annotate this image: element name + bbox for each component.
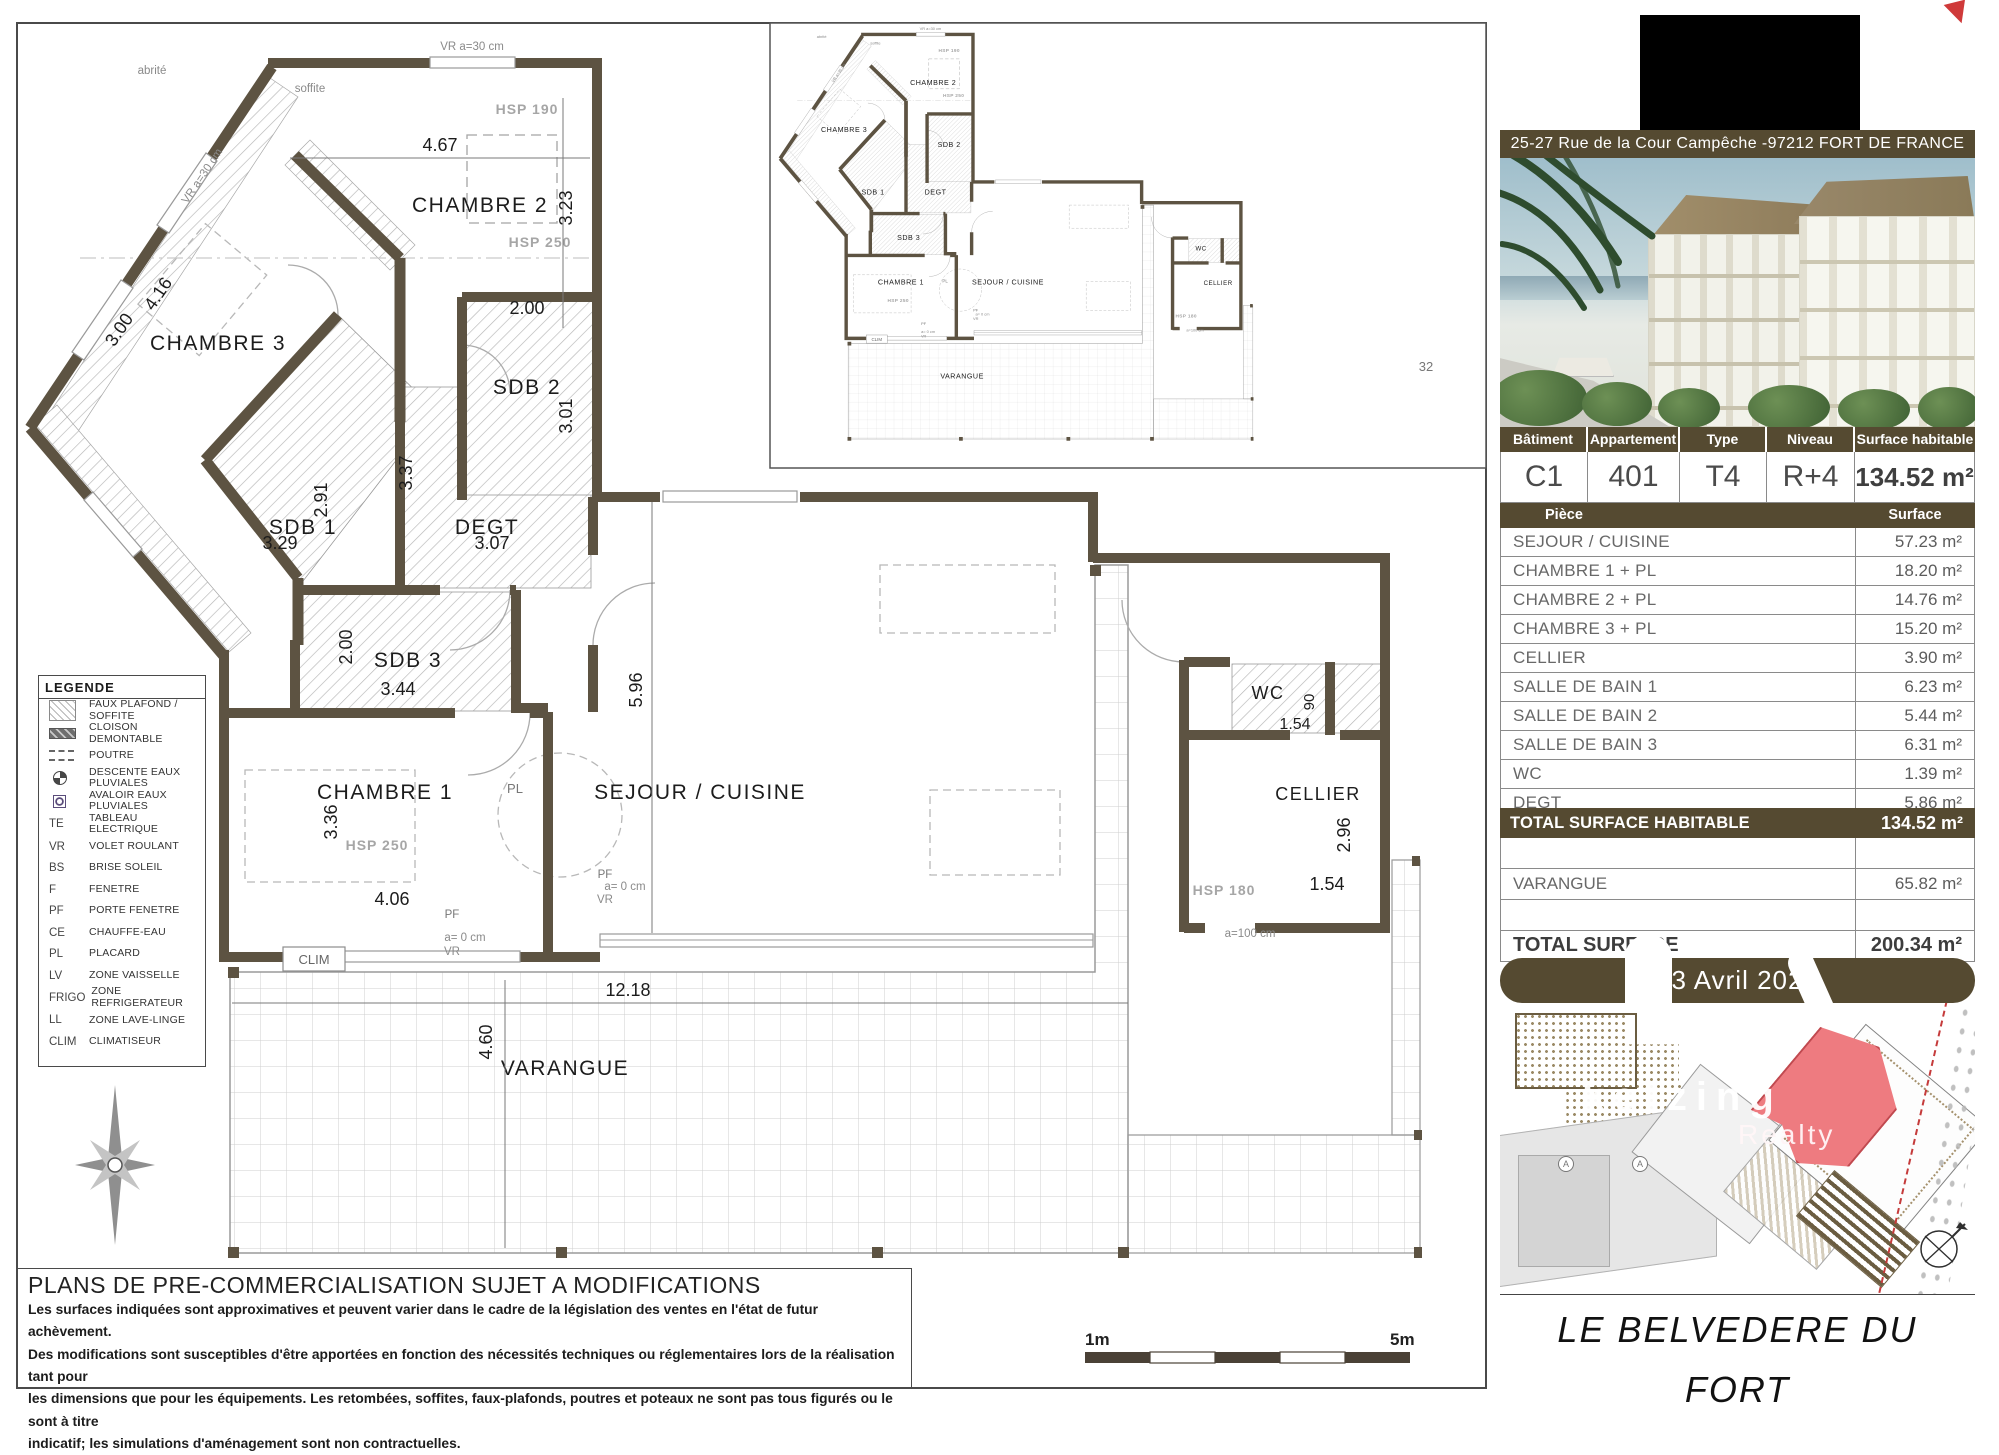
disclaimer-line: indicatif; les simulations d'aménagement… [28, 1433, 901, 1455]
legend-symbol-icon: F [43, 884, 83, 896]
disclaimer-line: les dimensions que pour les équipements.… [28, 1388, 901, 1433]
dim-3-01: 3.01 [556, 398, 576, 433]
legend-item-label: FENETRE [89, 884, 139, 896]
photo-bush [1582, 382, 1652, 426]
total-habitable-label: TOTAL SURFACE HABITABLE [1500, 808, 1855, 838]
legend-symbol-icon: FRIGO [43, 992, 85, 1004]
col-type: Type [1680, 427, 1767, 452]
legend-item: POUTRE [39, 745, 205, 767]
varangue-value: 65.82 m² [1855, 869, 1974, 899]
plan-sheet-page: CHAMBRE 2 CHAMBRE 3 SDB 2 SDB 1 DEGT SDB… [0, 0, 1999, 1413]
legend-symbol-icon [43, 728, 83, 739]
col-surface-habitable: Surface habitable [1855, 427, 1975, 452]
room-surface: 14.76 m² [1855, 586, 1974, 614]
room-row: WC 1.39 m² [1501, 760, 1974, 789]
annot-vr1: VR [597, 894, 613, 906]
room-row: SALLE DE BAIN 1 6.23 m² [1501, 673, 1974, 702]
dim-1-54b: 1.54 [1309, 874, 1344, 894]
annot-pf1: PF [598, 869, 613, 881]
project-title: LE BELVEDERE DU FORT [1500, 1300, 1975, 1360]
palm-tree-icon [1500, 158, 1720, 368]
spacer-row [1501, 838, 1974, 869]
hatch-wc2 [1332, 664, 1383, 733]
room-surface: 18.20 m² [1855, 557, 1974, 585]
col-appartement: Appartement [1588, 427, 1680, 452]
info-table-header: Bâtiment Appartement Type Niveau Surface… [1500, 427, 1975, 452]
marker-a-icon: A [1632, 1156, 1648, 1172]
building-photo [1500, 158, 1975, 427]
legend-item: AVALOIR EAUX PLUVIALES [39, 790, 205, 813]
dim-2-00b: 2.00 [336, 629, 356, 664]
value-batiment: C1 [1500, 452, 1588, 503]
legend-item: BS BRISE SOLEIL [39, 857, 205, 879]
site-plan: A A ketzing Realty [1500, 1003, 1975, 1295]
room-name: SALLE DE BAIN 3 [1501, 731, 1855, 759]
room-surface: 1.39 m² [1855, 760, 1974, 788]
room-row: CELLIER 3.90 m² [1501, 644, 1974, 673]
photo-bush [1658, 388, 1720, 427]
scale-5m-label: 5m [1390, 1330, 1415, 1349]
legend-symbol-icon [43, 750, 83, 761]
annot-pf2: PF [445, 909, 460, 921]
dim-3-36: 3.36 [321, 804, 341, 839]
dim-3-23: 3.23 [556, 190, 576, 225]
legend-item-label: POUTRE [89, 750, 134, 762]
disclaimer-box: PLANS DE PRE-COMMERCIALISATION SUJET A M… [17, 1268, 912, 1388]
terrace-extension [1128, 1135, 1420, 1253]
dim-12-18: 12.18 [605, 980, 650, 1000]
legend-symbol-icon [43, 700, 83, 721]
scale-bar: 1m 5m [1085, 1330, 1415, 1363]
photo-bush [1838, 389, 1910, 427]
watermark-realty: Realty [1738, 1119, 1835, 1151]
room-sdb2: SDB 2 [493, 376, 561, 399]
annot-a01: a= 0 cm [604, 881, 645, 893]
room-surface: 57.23 m² [1855, 528, 1974, 556]
legend-item: LV ZONE VAISSELLE [39, 965, 205, 987]
legend-symbol-icon: CE [43, 927, 83, 939]
room-name: CELLIER [1501, 644, 1855, 672]
legend-symbol-icon: PF [43, 905, 83, 917]
legend-item: DESCENTE EAUX PLUVIALES [39, 767, 205, 790]
sidebar: 25-27 Rue de la Cour Campêche -97212 FOR… [1500, 0, 1975, 1413]
value-niveau: R+4 [1767, 452, 1855, 503]
room-row: CHAMBRE 2 + PL 14.76 m² [1501, 586, 1974, 615]
room-wc: WC [1252, 683, 1285, 703]
rooms-table-header: Pièce Surface [1500, 503, 1975, 528]
annot-clim: CLIM [298, 952, 329, 967]
col-niveau: Niveau [1767, 427, 1855, 452]
legend-item-label: VOLET ROULANT [89, 841, 179, 853]
annot-hsp250b: HSP 250 [346, 837, 409, 853]
dim-5-96: 5.96 [626, 672, 646, 707]
annot-vr30a: VR a=30 cm [440, 41, 504, 53]
value-appartement: 401 [1588, 452, 1680, 503]
room-surface: 15.20 m² [1855, 615, 1974, 643]
room-chambre1: CHAMBRE 1 [317, 781, 453, 804]
legend-item-label: CHAUFFE-EAU [89, 927, 166, 939]
address-bar: 25-27 Rue de la Cour Campêche -97212 FOR… [1500, 130, 1975, 158]
room-chambre3: CHAMBRE 3 [150, 332, 286, 355]
room-surface: 6.31 m² [1855, 731, 1974, 759]
annot-soffite: soffite [295, 83, 325, 95]
room-name: SALLE DE BAIN 2 [1501, 702, 1855, 730]
totals-table: VARANGUE 65.82 m² TOTAL SURFACE 200.34 m… [1500, 838, 1975, 962]
room-surface: 5.44 m² [1855, 702, 1974, 730]
photo-bush [1918, 387, 1975, 427]
disclaimer-title: PLANS DE PRE-COMMERCIALISATION SUJET A M… [28, 1272, 901, 1299]
legend-item: F FENETRE [39, 879, 205, 901]
legend-item-label: ZONE REFRIGERATEUR [91, 986, 201, 1009]
spacer-row [1501, 900, 1974, 931]
annot-a02: a= 0 cm [444, 932, 485, 944]
dim-3-37: 3.37 [396, 455, 416, 490]
rooms-table: SEJOUR / CUISINE 57.23 m² CHAMBRE 1 + PL… [1500, 528, 1975, 818]
dim-3-44: 3.44 [380, 679, 415, 699]
room-varangue: VARANGUE [501, 1057, 629, 1080]
legend-item-label: DESCENTE EAUX PLUVIALES [89, 767, 201, 790]
legend-item-label: PLACARD [89, 948, 140, 960]
room-row: SALLE DE BAIN 3 6.31 m² [1501, 731, 1974, 760]
watermark-brand: ketzing [1582, 1075, 1783, 1120]
annot-abrite: abrité [138, 65, 167, 77]
annot-pl: PL [507, 781, 523, 796]
value-surface-habitable: 134.52 m² [1855, 452, 1975, 503]
varangue-row: VARANGUE 65.82 m² [1501, 869, 1974, 900]
legend-item-label: PORTE FENETRE [89, 905, 180, 917]
dim-2-96: 2.96 [1334, 817, 1354, 852]
legend-title: LEGENDE [39, 678, 205, 699]
siteplan-compass-icon [1915, 1221, 1969, 1275]
marker-a-icon: A [1558, 1156, 1574, 1172]
redacted-logo [1640, 15, 1860, 130]
col-surface: Surface [1855, 503, 1975, 528]
room-row: CHAMBRE 3 + PL 15.20 m² [1501, 615, 1974, 644]
legend-symbol-icon [43, 771, 83, 785]
room-row: SALLE DE BAIN 2 5.44 m² [1501, 702, 1974, 731]
info-table-values: C1 401 T4 R+4 134.52 m² [1500, 452, 1975, 503]
room-name: CHAMBRE 2 + PL [1501, 586, 1855, 614]
dim-3-07: 3.07 [474, 533, 509, 553]
room-name: SEJOUR / CUISINE [1501, 528, 1855, 556]
room-chambre2: CHAMBRE 2 [412, 194, 548, 217]
room-sdb3: SDB 3 [374, 649, 442, 672]
room-name: WC [1501, 760, 1855, 788]
legend-box: LEGENDE FAUX PLAFOND / SOFFITE CLOISON D… [38, 675, 206, 1067]
legend-item: CE CHAUFFE-EAU [39, 922, 205, 944]
legend-symbol-icon: LV [43, 970, 83, 982]
date-band: 23 Avril 2024 [1500, 958, 1975, 1003]
room-name: SALLE DE BAIN 1 [1501, 673, 1855, 701]
room-name: CHAMBRE 1 + PL [1501, 557, 1855, 585]
legend-item: CLIM CLIMATISEUR [39, 1031, 205, 1053]
dim-2-91: 2.91 [311, 482, 331, 517]
annot-vr2: VR [444, 946, 460, 958]
col-piece: Pièce [1500, 503, 1855, 528]
legend-item-label: ZONE LAVE-LINGE [89, 1015, 185, 1027]
legend-symbol-icon: CLIM [43, 1036, 83, 1048]
dim-90: 90 [1301, 694, 1318, 711]
room-sejour: SEJOUR / CUISINE [594, 781, 806, 804]
legend-item-label: TABLEAU ELECTRIQUE [89, 813, 201, 836]
dim-4-06: 4.06 [374, 889, 409, 909]
legend-item: PF PORTE FENETRE [39, 900, 205, 922]
legend-symbol-icon: LL [43, 1014, 83, 1026]
total-habitable-value: 134.52 m² [1855, 808, 1975, 838]
terrace-strip [1392, 860, 1420, 1135]
legend-symbol-icon: VR [43, 841, 83, 853]
grid-number: 32 [1419, 359, 1433, 374]
legend-item-label: AVALOIR EAUX PLUVIALES [89, 790, 201, 813]
col-batiment: Bâtiment [1500, 427, 1588, 452]
legend-item-label: FAUX PLAFOND / SOFFITE [89, 699, 201, 722]
room-row: SEJOUR / CUISINE 57.23 m² [1501, 528, 1974, 557]
dim-1-54a: 1.54 [1279, 716, 1310, 733]
legend-item: TE TABLEAU ELECTRIQUE [39, 813, 205, 836]
legend-item: FRIGO ZONE REFRIGERATEUR [39, 986, 205, 1009]
legend-symbol-icon: PL [43, 948, 83, 960]
room-row: CHAMBRE 1 + PL 18.20 m² [1501, 557, 1974, 586]
room-cellier: CELLIER [1275, 784, 1361, 804]
legend-item: FAUX PLAFOND / SOFFITE [39, 699, 205, 722]
annot-a100: a=100 cm [1225, 928, 1276, 940]
legend-symbol-icon [43, 795, 83, 808]
room-surface: 3.90 m² [1855, 644, 1974, 672]
annot-hsp250a: HSP 250 [509, 234, 572, 250]
photo-bush [1748, 385, 1830, 427]
hatch-soffite-band1 [43, 78, 298, 442]
total-surface-value: 200.34 m² [1855, 931, 1974, 961]
disclaimer-line: Les surfaces indiquées sont approximativ… [28, 1299, 901, 1344]
scale-1m-label: 1m [1085, 1330, 1110, 1349]
legend-symbol-icon: BS [43, 862, 83, 874]
legend-item: PL PLACARD [39, 943, 205, 965]
legend-item-label: BRISE SOLEIL [89, 862, 163, 874]
legend-item: CLOISON DEMONTABLE [39, 722, 205, 745]
dim-2-00a: 2.00 [509, 298, 544, 318]
dim-4-60: 4.60 [476, 1024, 496, 1059]
total-habitable-row: TOTAL SURFACE HABITABLE 134.52 m² [1500, 808, 1975, 838]
room-name: CHAMBRE 3 + PL [1501, 615, 1855, 643]
legend-item: VR VOLET ROULANT [39, 836, 205, 858]
compass-rose [75, 1085, 155, 1245]
dim-4-67: 4.67 [422, 135, 457, 155]
legend-item-label: ZONE VAISSELLE [89, 970, 180, 982]
annot-hsp190: HSP 190 [496, 101, 559, 117]
annot-hsp180: HSP 180 [1193, 882, 1256, 898]
legend-item: LL ZONE LAVE-LINGE [39, 1010, 205, 1032]
varangue-label: VARANGUE [1501, 869, 1855, 899]
legend-item-label: CLOISON DEMONTABLE [89, 722, 201, 745]
dim-3-29: 3.29 [262, 533, 297, 553]
disclaimer-line: Des modifications sont susceptibles d'êt… [28, 1344, 901, 1389]
room-surface: 6.23 m² [1855, 673, 1974, 701]
legend-symbol-icon: TE [43, 818, 83, 830]
value-type: T4 [1680, 452, 1767, 503]
legend-item-label: CLIMATISEUR [89, 1036, 161, 1048]
